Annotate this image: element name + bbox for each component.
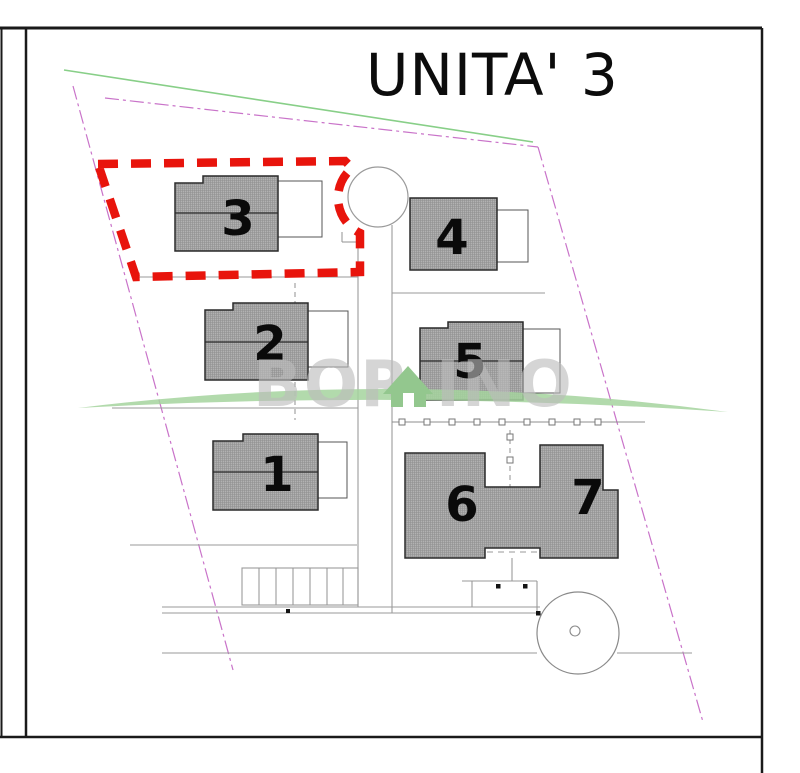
- unit-1-garage: [318, 442, 347, 498]
- turnaround-circle-top: [348, 167, 408, 227]
- site-plan-page: 1 2 3 4 5 6 7 BOR INO: [0, 0, 800, 773]
- watermark-text-right: INO: [436, 348, 574, 422]
- watermark-text-left: BOR: [253, 348, 411, 422]
- site-plan-drawing: 1 2 3 4 5 6 7 BOR INO: [0, 0, 800, 773]
- cul-de-sac-circle: [537, 592, 619, 674]
- unit-6-number: 6: [445, 477, 478, 533]
- unit-3-garage: [278, 181, 322, 237]
- unit-7-number: 7: [571, 470, 604, 526]
- plan-title: UNITA' 3: [366, 41, 619, 109]
- unit-4-garage: [497, 210, 528, 262]
- unit-1-number: 1: [260, 447, 293, 503]
- unit-4-number: 4: [435, 210, 468, 266]
- unit-3-number: 3: [221, 191, 254, 247]
